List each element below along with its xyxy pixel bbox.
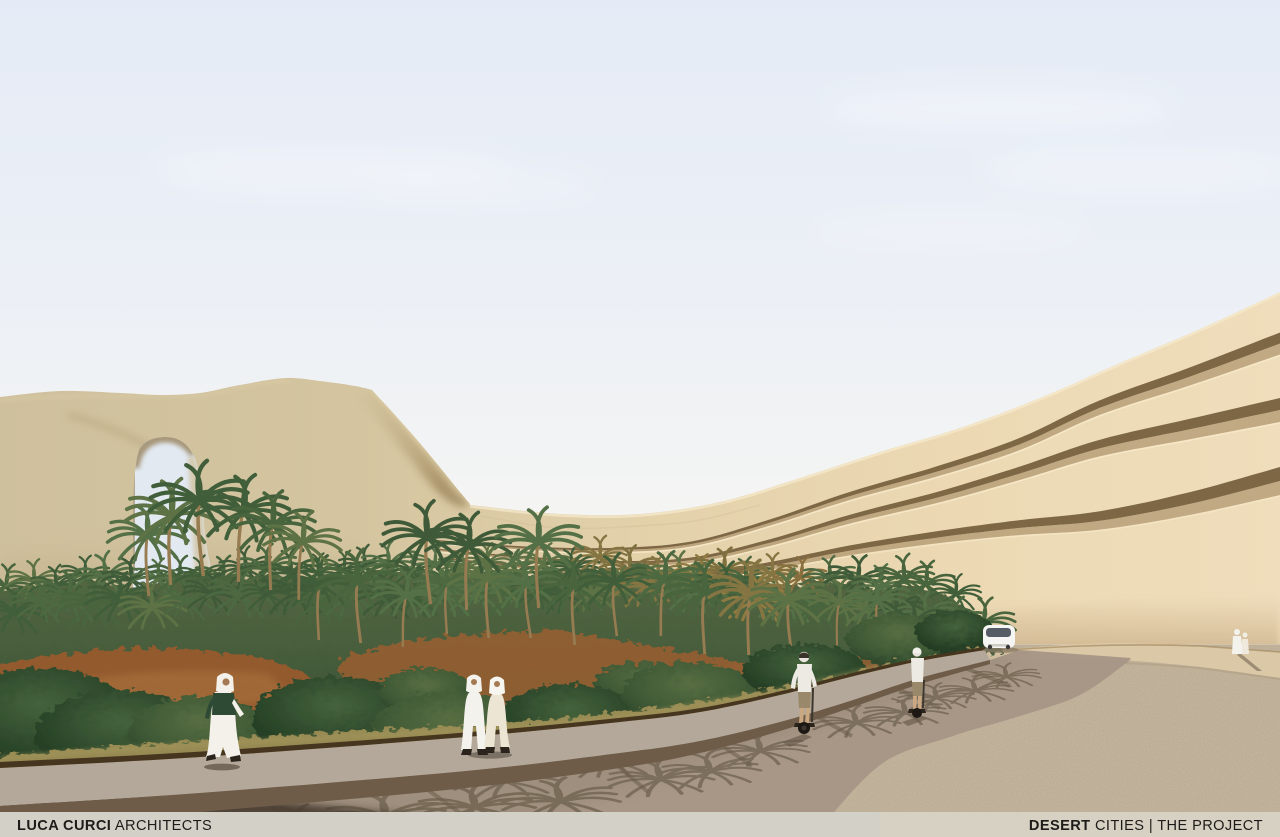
svg-text:LUCA CURCI ARCHITECTS: LUCA CURCI ARCHITECTS bbox=[17, 818, 212, 834]
svg-text:DESERT CITIES | THE PROJECT: DESERT CITIES | THE PROJECT bbox=[1029, 818, 1263, 834]
